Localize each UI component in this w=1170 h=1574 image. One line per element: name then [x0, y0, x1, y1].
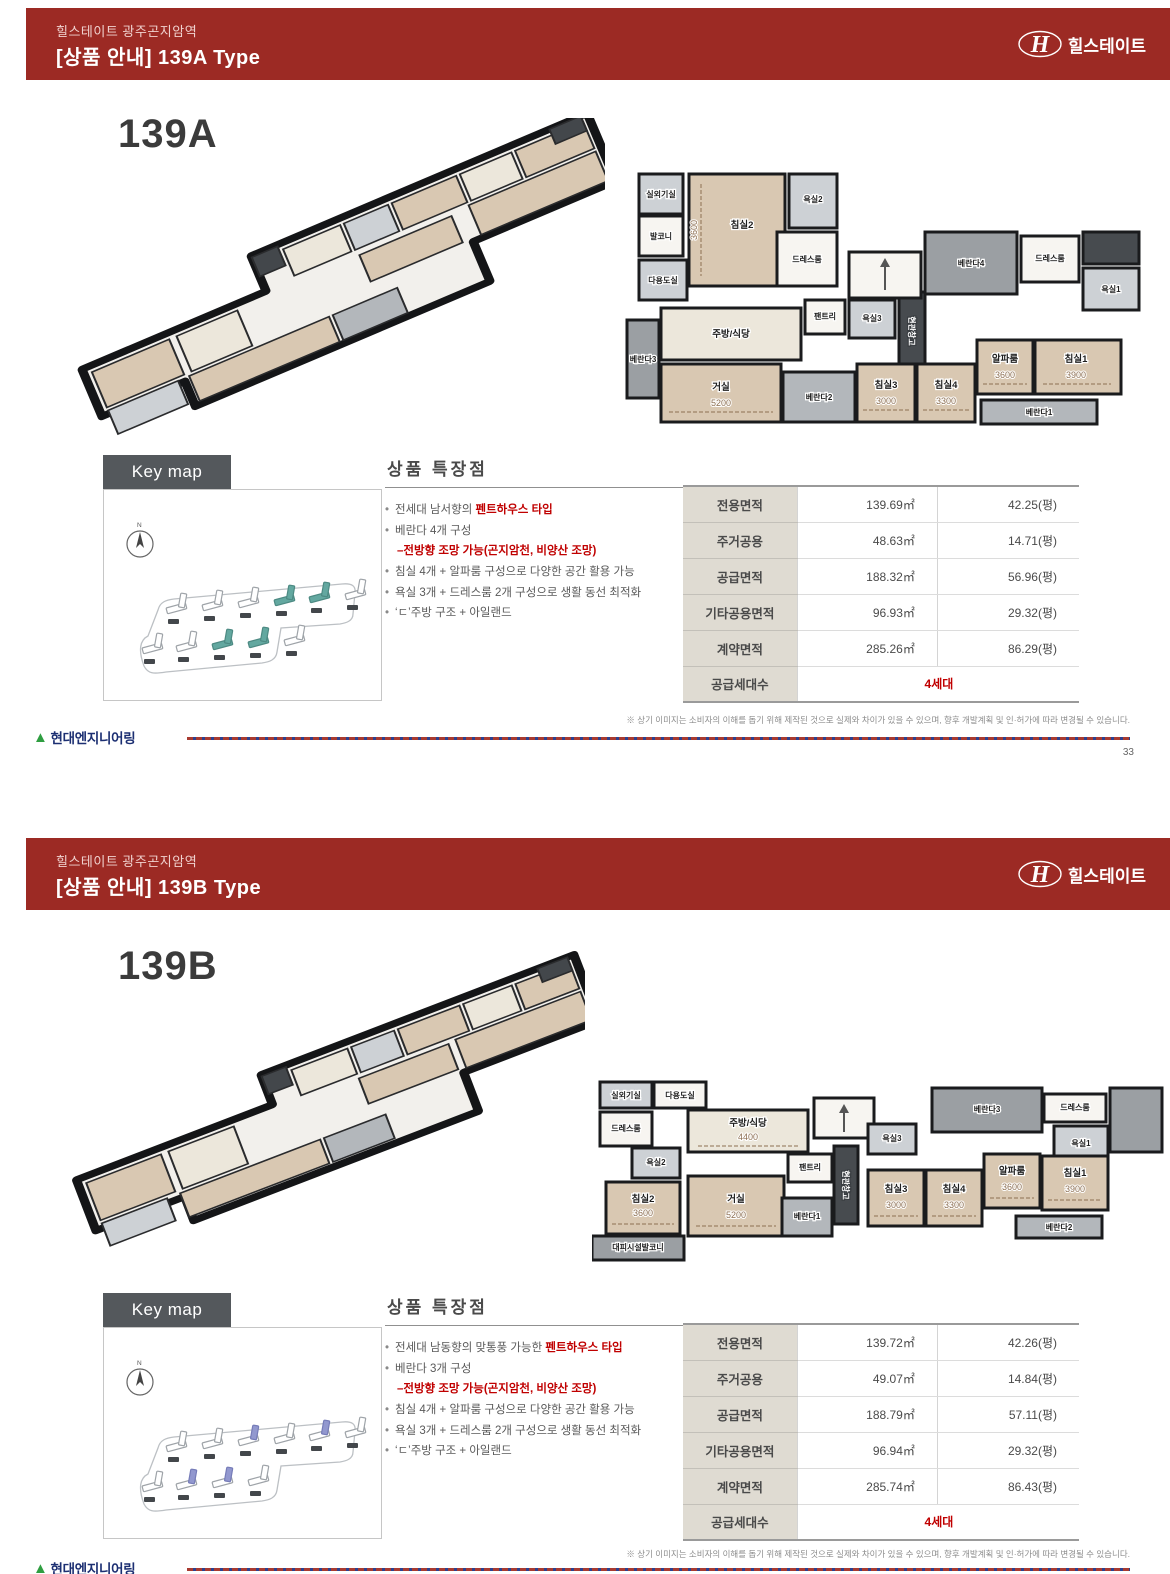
room-bed3	[857, 364, 915, 422]
row-label: 계약면적	[683, 1468, 797, 1504]
room-bed4	[917, 364, 975, 422]
row-pyeong: 42.25(평)	[937, 486, 1079, 522]
room-bed1	[1035, 340, 1121, 394]
room-outdoor-unit-label: 실외기실	[646, 189, 675, 199]
row-area: 49.07㎡	[797, 1360, 937, 1396]
floorplan-3d-139b	[25, 950, 585, 1280]
table-row: 전용면적139.72㎡42.26(평)	[683, 1324, 1079, 1360]
keymap-svg-139b: N	[104, 1328, 381, 1538]
room-living	[661, 364, 781, 422]
room-bed4-label: 침실4	[935, 379, 958, 391]
room-bed4-dim: 3300	[944, 1200, 964, 1210]
table-row: 기타공용면적96.94㎡29.32(평)	[683, 1432, 1079, 1468]
room-bed3	[868, 1170, 924, 1226]
room-dress-right-label: 드레스룸	[1060, 1102, 1090, 1112]
room-bed1-dim: 3900	[1066, 370, 1086, 380]
feature-line5: 욕실 3개 + 드레스룸 2개 구성으로 생활 동선 최적화	[395, 1421, 641, 1442]
row-label: 주거공용	[683, 1360, 797, 1396]
row-label: 공급면적	[683, 558, 797, 594]
row-area: 285.74㎡	[797, 1468, 937, 1504]
page-number: 33	[1123, 747, 1134, 758]
room-alpha-dim: 3600	[1002, 1182, 1022, 1192]
room-pantry-label: 팬트리	[799, 1162, 821, 1172]
feature-line1: 전세대 남서향의	[395, 504, 475, 516]
row-area: 188.79㎡	[797, 1396, 937, 1432]
room-bed2-dim: 3600	[689, 220, 699, 240]
row-label: 전용면적	[683, 486, 797, 522]
room-veranda2-label: 베란다2	[1046, 1222, 1073, 1232]
room-bed2-label: 침실2	[731, 219, 754, 231]
room-veranda1-label: 베란다1	[1026, 407, 1053, 417]
row-area: 48.63㎡	[797, 522, 937, 558]
row-label: 기타공용면적	[683, 1432, 797, 1468]
room-bed3-dim: 3000	[876, 396, 896, 406]
room-alpha-dim: 3600	[995, 370, 1015, 380]
page-title: [상품 안내] 139A Type	[56, 41, 260, 70]
room-bath2-label: 욕실2	[646, 1157, 666, 1167]
page-title: [상품 안내] 139B Type	[56, 871, 261, 900]
duct-space	[1110, 1088, 1162, 1152]
row-pyeong: 56.96(평)	[937, 558, 1079, 594]
north-label: N	[137, 1360, 142, 1367]
row-label: 기타공용면적	[683, 594, 797, 630]
row-units: 4세대	[797, 1504, 1079, 1540]
room-alpha	[977, 340, 1033, 394]
row-label: 전용면적	[683, 1324, 797, 1360]
room-bed1-dim: 3900	[1065, 1184, 1085, 1194]
room-dress-right-label: 드레스룸	[1035, 253, 1065, 263]
room-bed1-label: 침실1	[1065, 353, 1088, 365]
footer-logo-text: 현대엔지니어링	[51, 727, 136, 747]
svg-text:H: H	[1029, 32, 1050, 58]
row-units: 4세대	[797, 666, 1079, 702]
hillstate-h-script-icon: H	[1017, 28, 1063, 60]
table-row: 계약면적285.74㎡86.43(평)	[683, 1468, 1079, 1504]
footer-divider	[187, 1568, 1130, 1571]
table-row: 공급세대수4세대	[683, 666, 1079, 702]
page2-header-band: 힐스테이트 광주곤지암역 [상품 안내] 139B Type H 힐스테이트	[26, 838, 1170, 910]
room-bed1	[1042, 1156, 1108, 1210]
table-row: 공급면적188.79㎡57.11(평)	[683, 1396, 1079, 1432]
room-balcony-label: 발코니	[650, 231, 672, 241]
room-dress-left-label: 드레스룸	[792, 254, 822, 264]
area-table-139a: 전용면적139.69㎡42.25(평) 주거공용48.63㎡14.71(평) 공…	[683, 485, 1079, 703]
room-bath1-label: 욕실1	[1101, 284, 1121, 294]
room-alpha-label: 알파룸	[992, 353, 1018, 365]
svg-text:H: H	[1029, 862, 1050, 888]
room-kitchen-dim: 4400	[738, 1132, 758, 1142]
feature-line1-highlight: 펜트하우스 타입	[475, 504, 552, 516]
room-veranda4-label: 베란다4	[958, 258, 985, 268]
area-table-139b: 전용면적139.72㎡42.26(평) 주거공용49.07㎡14.84(평) 공…	[683, 1323, 1079, 1541]
floorplan-2d-139a: 실외기실 발코니 다용도실 침실2 3600 욕실2 드레스룸 주방/식당 팬트…	[625, 168, 1170, 428]
row-pyeong: 14.84(평)	[937, 1360, 1079, 1396]
feature-line1: 전세대 남동향의 맞통풍 가능한	[395, 1342, 545, 1354]
room-entry-storage-label: 현관창고	[907, 316, 917, 346]
room-alpha-label: 알파룸	[999, 1165, 1025, 1177]
footer-logo: ▲ 현대엔지니어링	[33, 1558, 135, 1574]
room-veranda1-label: 베란다1	[794, 1211, 821, 1221]
brand-logo: H 힐스테이트	[1017, 28, 1146, 60]
row-pyeong: 14.71(평)	[937, 522, 1079, 558]
row-label: 공급세대수	[683, 666, 797, 702]
feature-line2: 베란다 4개 구성	[395, 521, 471, 542]
row-pyeong: 57.11(평)	[937, 1396, 1079, 1432]
table-row: 계약면적285.26㎡86.29(평)	[683, 630, 1079, 666]
brand-logo-text: 힐스테이트	[1068, 862, 1146, 887]
table-row: 전용면적139.69㎡42.25(평)	[683, 486, 1079, 522]
room-bed3-label: 침실3	[885, 1183, 908, 1195]
brand-logo-text: 힐스테이트	[1068, 32, 1146, 57]
room-utility-label: 다용도실	[648, 275, 677, 285]
room-pantry-label: 팬트리	[814, 311, 836, 321]
room-living-label: 거실	[712, 381, 730, 393]
floorplan-3d-139a	[25, 118, 605, 463]
keymap-tab-139b: Key map	[103, 1293, 231, 1327]
keymap-buildings	[139, 1416, 369, 1502]
row-area: 139.72㎡	[797, 1324, 937, 1360]
feature-line3: –전방향 조망 가능(곤지암천, 비양산 조망)	[397, 541, 596, 562]
feature-line2: 베란다 3개 구성	[395, 1359, 471, 1380]
row-label: 계약면적	[683, 630, 797, 666]
room-veranda3-label: 베란다3	[974, 1104, 1001, 1114]
features-title: 상품 특장점	[387, 1293, 687, 1318]
row-area: 188.32㎡	[797, 558, 937, 594]
row-area: 96.94㎡	[797, 1432, 937, 1468]
room-living-label: 거실	[727, 1193, 745, 1205]
row-area: 285.26㎡	[797, 630, 937, 666]
feature-line6: ‘ㄷ’주방 구조 + 아일랜드	[395, 1441, 512, 1462]
room-bed3-dim: 3000	[886, 1200, 906, 1210]
row-pyeong: 42.26(평)	[937, 1324, 1079, 1360]
room-alpha	[984, 1154, 1040, 1208]
row-pyeong: 86.43(평)	[937, 1468, 1079, 1504]
room-bath1-label: 욕실1	[1071, 1138, 1091, 1148]
feature-line4: 침실 4개 + 알파룸 구성으로 다양한 공간 활용 가능	[395, 1400, 635, 1421]
features-divider	[385, 1325, 687, 1326]
footer-logo-text: 현대엔지니어링	[51, 1558, 136, 1574]
brand-logo: H 힐스테이트	[1017, 858, 1146, 890]
row-label: 공급세대수	[683, 1504, 797, 1540]
row-label: 주거공용	[683, 522, 797, 558]
keymap-buildings	[139, 578, 369, 664]
room-veranda2-label: 베란다2	[806, 392, 833, 402]
room-bed2-dim: 3600	[633, 1208, 653, 1218]
room-bed3-label: 침실3	[875, 379, 898, 391]
room-shelter-balcony-label: 대피시설발코니	[612, 1242, 664, 1252]
duct-space	[1083, 232, 1139, 264]
room-outdoor-unit-label: 실외기실	[611, 1090, 640, 1100]
table-row: 기타공용면적96.93㎡29.32(평)	[683, 594, 1079, 630]
row-pyeong: 29.32(평)	[937, 594, 1079, 630]
room-living-dim: 5200	[726, 1210, 746, 1220]
project-name: 힐스테이트 광주곤지암역	[56, 21, 197, 40]
room-bed2-label: 침실2	[632, 1193, 655, 1205]
room-bed4-label: 침실4	[943, 1183, 966, 1195]
row-label: 공급면적	[683, 1396, 797, 1432]
feature-line5: 욕실 3개 + 드레스룸 2개 구성으로 생활 동선 최적화	[395, 583, 641, 604]
feature-line3: –전방향 조망 가능(곤지암천, 비양산 조망)	[397, 1379, 596, 1400]
green-triangle-icon: ▲	[33, 729, 48, 746]
floorplan-2d-139b: 실외기실 다용도실 주방/식당 4400 드레스룸 욕실2 침실2 3600 대…	[592, 1058, 1170, 1263]
room-bath3-label: 욕실3	[862, 313, 882, 323]
disclaimer-139b: ※ 상기 이미지는 소비자의 이해를 돕기 위해 제작된 것으로 실제와 차이가…	[626, 1548, 1130, 1560]
room-kitchen-label: 주방/식당	[712, 328, 750, 340]
row-area: 139.69㎡	[797, 486, 937, 522]
feature-line4: 침실 4개 + 알파룸 구성으로 다양한 공간 활용 가능	[395, 562, 635, 583]
keymap-box-139a: N	[103, 489, 382, 701]
keymap-box-139b: N	[103, 1327, 382, 1539]
room-dress-left-label: 드레스룸	[611, 1123, 641, 1133]
footer-logo: ▲ 현대엔지니어링	[33, 727, 135, 747]
keymap-tab-139a: Key map	[103, 455, 231, 489]
room-bed1-label: 침실1	[1064, 1167, 1087, 1179]
room-bed4	[926, 1170, 982, 1226]
room-bath3-label: 욕실3	[882, 1133, 902, 1143]
table-row: 주거공용49.07㎡14.84(평)	[683, 1360, 1079, 1396]
feature-line1-highlight: 펜트하우스 타입	[545, 1342, 622, 1354]
room-kitchen-label: 주방/식당	[729, 1117, 767, 1129]
room-utility-label: 다용도실	[665, 1090, 694, 1100]
room-bed4-dim: 3300	[936, 396, 956, 406]
row-area: 96.93㎡	[797, 594, 937, 630]
room-veranda3-label: 베란다3	[630, 354, 657, 364]
room-living	[688, 1176, 784, 1236]
features-139b: 상품 특장점 •전세대 남동향의 맞통풍 가능한 펜트하우스 타입 •베란다 3…	[385, 1293, 687, 1462]
features-139a: 상품 특장점 •전세대 남서향의 펜트하우스 타입 •베란다 4개 구성 –전방…	[385, 455, 687, 624]
keymap-svg-139a: N	[104, 490, 381, 700]
project-name: 힐스테이트 광주곤지암역	[56, 851, 197, 870]
green-triangle-icon: ▲	[33, 1560, 48, 1574]
features-divider	[385, 487, 687, 488]
row-pyeong: 29.32(평)	[937, 1432, 1079, 1468]
table-row: 주거공용48.63㎡14.71(평)	[683, 522, 1079, 558]
table-row: 공급면적188.32㎡56.96(평)	[683, 558, 1079, 594]
room-bath2-label: 욕실2	[803, 194, 823, 204]
room-living-dim: 5200	[711, 398, 731, 408]
feature-line6: ‘ㄷ’주방 구조 + 아일랜드	[395, 603, 512, 624]
north-label: N	[137, 522, 142, 529]
table-row: 공급세대수4세대	[683, 1504, 1079, 1540]
footer-divider	[187, 737, 1130, 740]
row-pyeong: 86.29(평)	[937, 630, 1079, 666]
disclaimer-139a: ※ 상기 이미지는 소비자의 이해를 돕기 위해 제작된 것으로 실제와 차이가…	[626, 714, 1130, 726]
features-title: 상품 특장점	[387, 455, 687, 480]
page1-header-band: 힐스테이트 광주곤지암역 [상품 안내] 139A Type H 힐스테이트	[26, 8, 1170, 80]
hillstate-h-script-icon: H	[1017, 858, 1063, 890]
brochure-canvas: 힐스테이트 광주곤지암역 [상품 안내] 139A Type H 힐스테이트 1…	[0, 0, 1170, 1574]
room-entry-storage-label: 현관창고	[841, 1170, 851, 1200]
